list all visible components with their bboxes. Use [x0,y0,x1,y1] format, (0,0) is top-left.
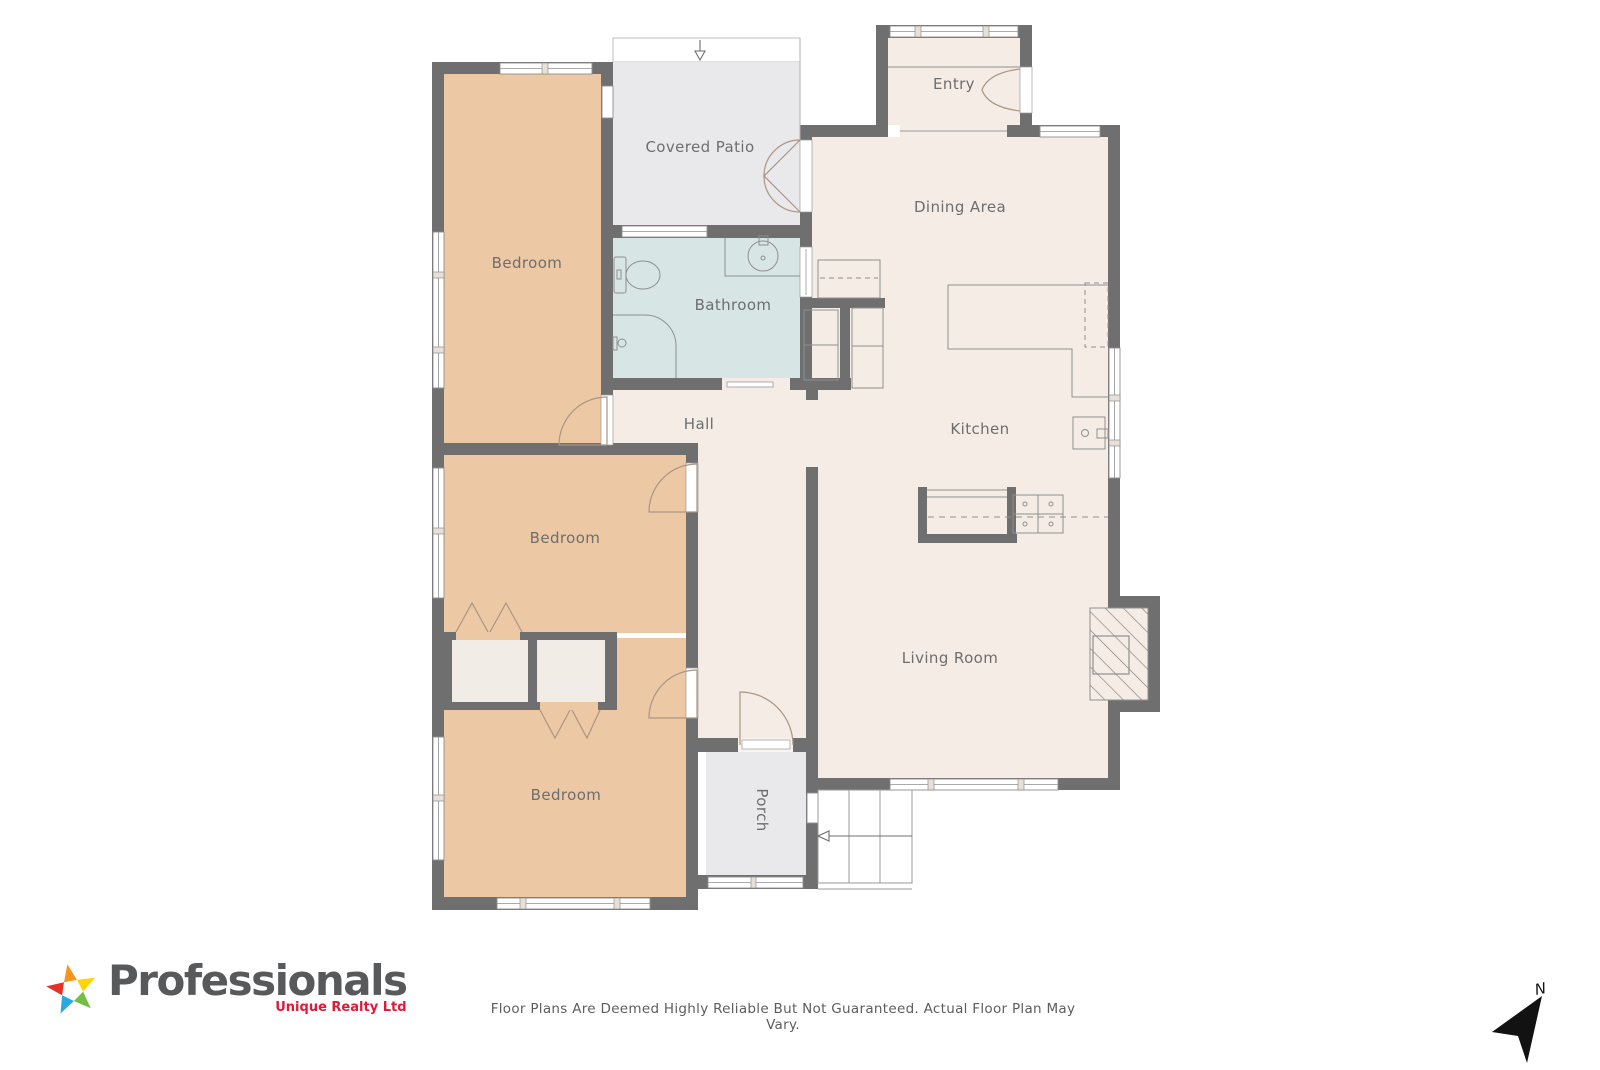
label-bedroom-top: Bedroom [492,254,563,272]
floor-plan-drawing: Covered Patio Entry Dining Area Bedroom … [0,0,1600,1066]
stairs [818,790,912,889]
room-hall-lower-fill [686,455,806,738]
bedroom-bottom-door [686,668,698,718]
hall-kitchen-opening [806,400,818,467]
closet-1-opening [456,632,520,640]
bathroom-threshold [727,382,773,387]
brand-logo: Professionals Unique Realty Ltd [44,960,407,1020]
label-dining-area: Dining Area [914,198,1006,216]
north-arrow: N [1492,979,1548,1063]
label-bedroom-middle: Bedroom [530,529,601,547]
label-entry: Entry [933,75,975,93]
label-hall: Hall [684,415,714,433]
label-porch: Porch [753,788,771,831]
brand-tagline: Unique Realty Ltd [275,1000,406,1015]
label-covered-patio: Covered Patio [645,138,754,156]
brand-name: Professionals [108,960,407,1002]
label-bedroom-bottom: Bedroom [531,786,602,804]
north-arrow-needle [1492,996,1542,1063]
room-fills [444,37,1108,897]
closet-1-fill [452,640,528,702]
closet-2-opening [540,702,598,710]
north-arrow-label: N [1533,979,1548,999]
room-main-living-fill [812,137,1108,778]
disclaimer-text: Floor Plans Are Deemed Highly Reliable B… [483,1001,1083,1033]
floor-plan-page: Covered Patio Entry Dining Area Bedroom … [0,0,1600,1066]
bedroom-middle-door [686,463,698,512]
label-living-room: Living Room [902,649,998,667]
label-kitchen: Kitchen [950,420,1009,438]
brand-star-icon [44,960,100,1020]
entry-door [1020,67,1032,113]
patio-eave-strip [613,38,800,62]
closet-2-fill [537,640,605,702]
patio-french-doors [800,140,812,212]
porch-door-leaf [742,740,790,749]
fireplace [1090,608,1148,700]
label-bathroom: Bathroom [695,296,772,314]
